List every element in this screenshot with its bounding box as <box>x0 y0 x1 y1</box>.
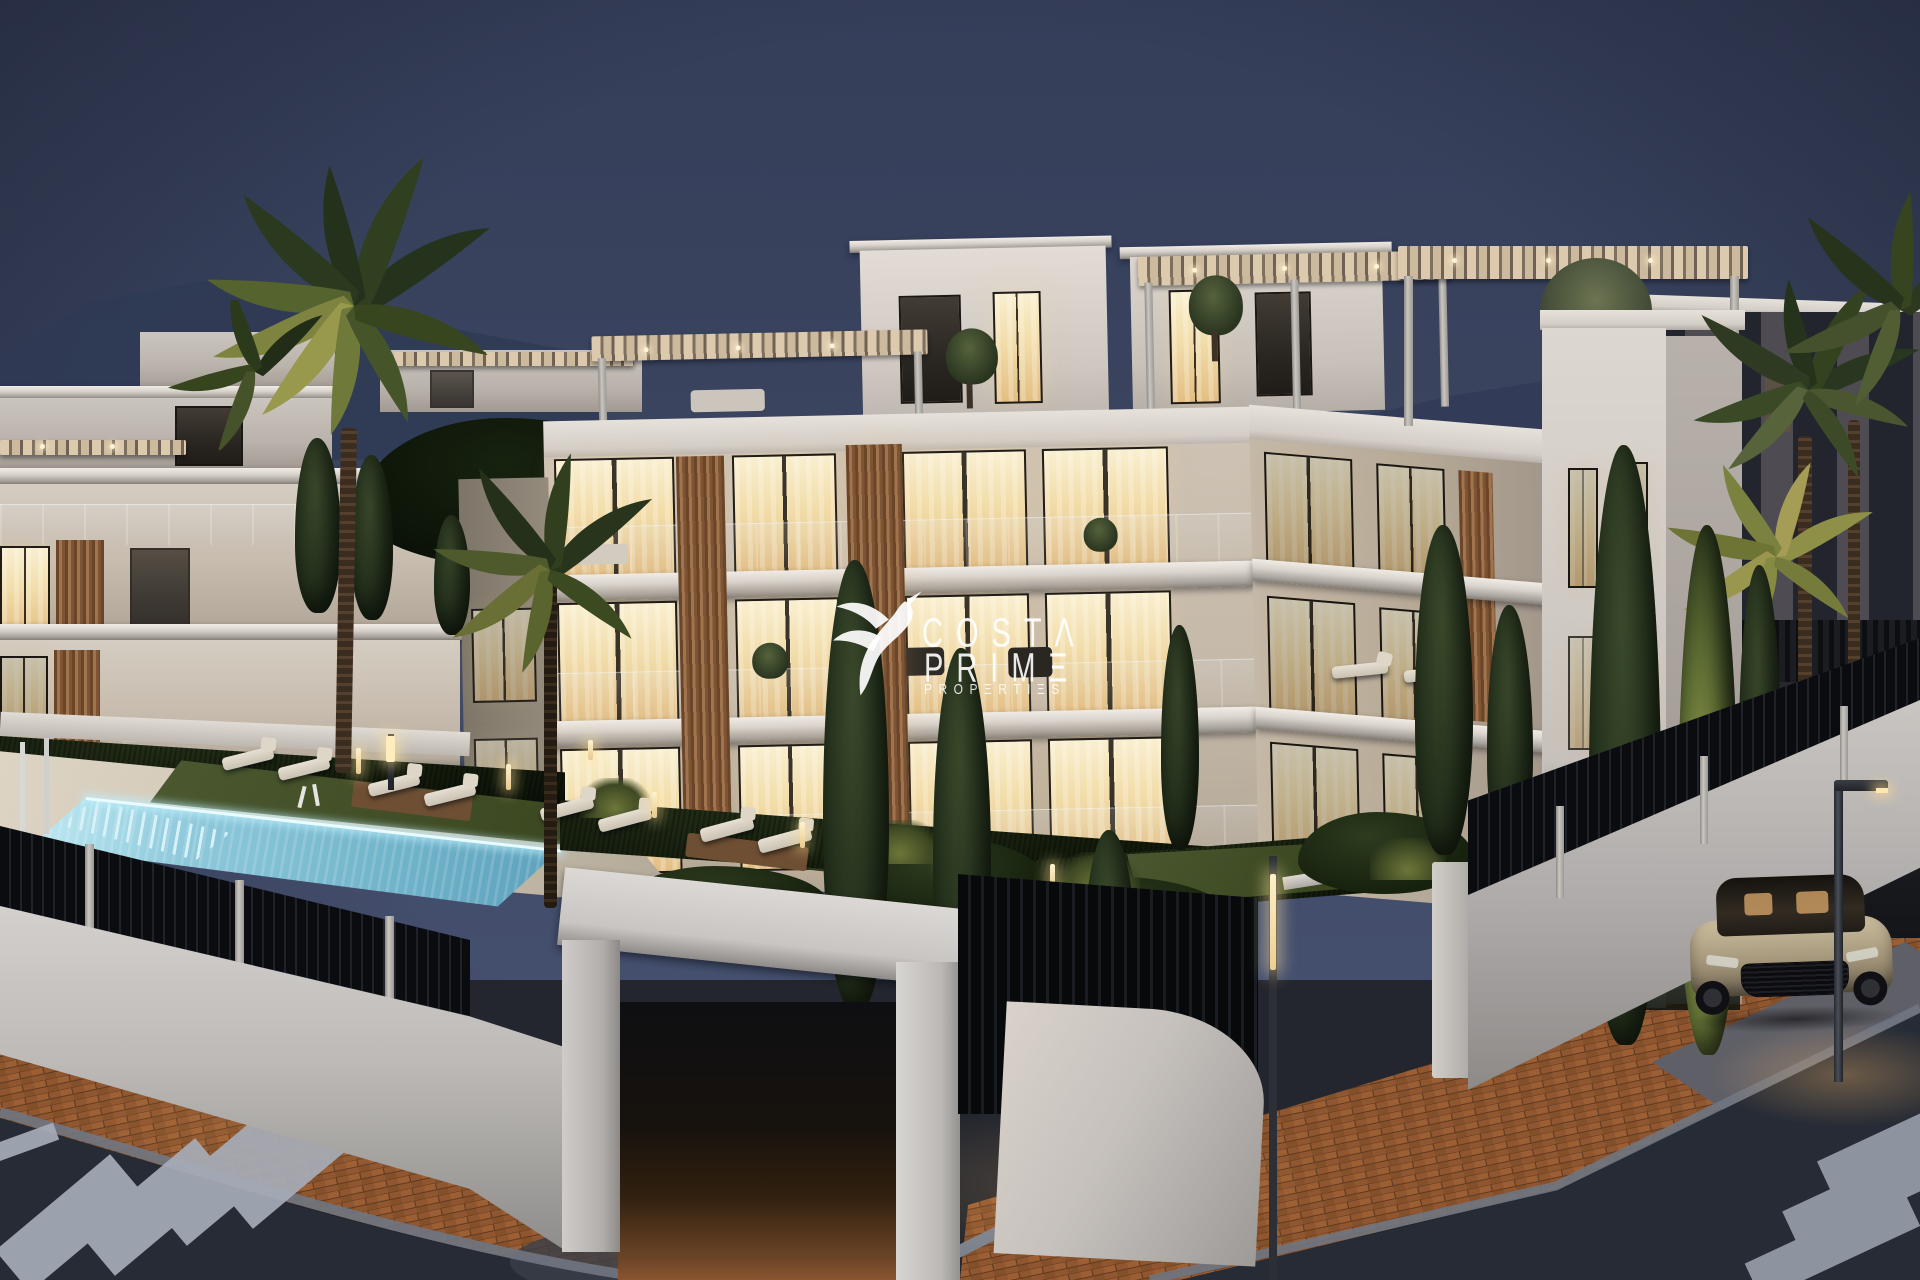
lamp-corner-light <box>1270 874 1276 970</box>
lamp-post <box>1834 782 1843 1082</box>
bird-beak <box>907 591 922 606</box>
night-render-scene: COSTΛ PRIMΞ PROPΞRTIΞS <box>0 0 1920 1280</box>
watermark-line-3: PROPΞRTIΞS <box>924 681 1066 698</box>
bird-wing-lower <box>833 630 881 651</box>
watermark: COSTΛ PRIMΞ PROPΞRTIΞS <box>850 583 1150 713</box>
lamp-head-light <box>1876 788 1888 793</box>
hummingbird-logo-icon <box>826 583 926 711</box>
bird-wing-upper <box>837 603 889 629</box>
